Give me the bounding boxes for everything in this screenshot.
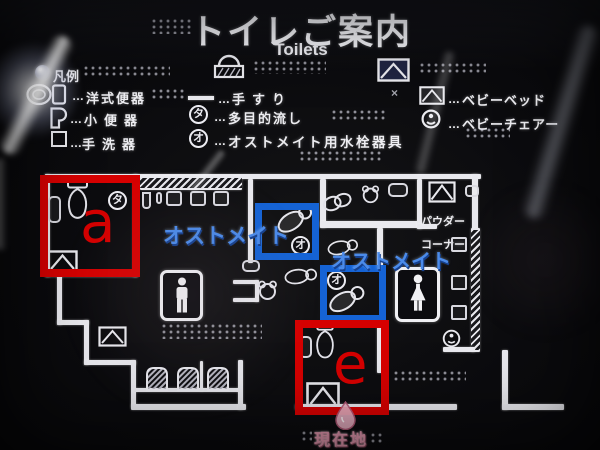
urinal-icon (242, 260, 260, 272)
multipurpose-sink-icon (360, 184, 381, 205)
sink-icon (451, 275, 467, 290)
urinal-icon (156, 192, 162, 204)
legend-item-western-toilet: 洋式便器 (86, 88, 146, 107)
sink-icon (451, 305, 467, 320)
multipurpose-sink-icon (256, 279, 279, 302)
braille-dots (254, 61, 326, 74)
wall-segment (84, 320, 89, 365)
multipurpose-sink-badge: タ (189, 105, 208, 124)
handrail-icon (188, 96, 214, 100)
ellipsis-dots: … (72, 89, 84, 103)
photo-light-streak (0, 158, 7, 250)
powder-corner-line1: パウダー (421, 216, 465, 228)
western-toilet-icon (25, 83, 67, 106)
braille-dots (84, 66, 170, 78)
legend-item-baby-bed: ベビーベッド (462, 90, 546, 109)
wall-segment (57, 275, 62, 325)
braille-dots (466, 128, 510, 140)
wall-segment (131, 360, 136, 408)
wall-segment (131, 404, 246, 410)
toilet-front-icon (210, 52, 248, 82)
wall-segment (238, 360, 243, 410)
wall-segment (502, 350, 508, 410)
hand-basin-icon (51, 131, 67, 147)
braille-dots (152, 89, 184, 99)
legend-item-urinal: 小便器 (84, 110, 144, 129)
powder-corner-icon (428, 181, 456, 203)
red-marker-a: a (80, 193, 116, 251)
braille-dots (394, 371, 466, 383)
urinal-icon (50, 107, 69, 129)
ostomate-label-2: オストメイト (331, 245, 451, 274)
ostomate-label-1: オストメイト (163, 220, 289, 250)
wall-segment (200, 361, 203, 391)
womens-room-sign (395, 267, 440, 322)
wall-segment-hatched (140, 176, 242, 190)
braille-dots (371, 433, 383, 443)
braille-dots (300, 151, 384, 163)
baby-bed-icon (419, 85, 445, 106)
sink-icon (451, 237, 467, 252)
wall-segment-hatched (471, 228, 480, 352)
ellipsis-dots: … (70, 112, 82, 126)
ellipsis-dots: … (448, 92, 460, 106)
ellipsis-dots: … (214, 110, 226, 124)
current-location-label: 現在地 (314, 426, 368, 450)
braille-dots (162, 324, 262, 339)
toilet-icon (282, 263, 320, 290)
baby-bed-icon (98, 326, 127, 347)
tactile-toilet-guide-sign: トイレご案内 Toilets 凡例 … 洋式便器 … (0, 0, 600, 450)
wall-segment (472, 174, 478, 232)
mens-room-sign (160, 270, 203, 321)
urinal-icon (174, 364, 202, 392)
baby-chair-icon (421, 109, 441, 129)
urinal-icon (190, 191, 206, 206)
ellipsis-dots: … (214, 134, 226, 148)
wall-segment (320, 221, 422, 228)
legend-bullet-dome (35, 65, 50, 80)
legend-item-ostomate-fixture: オストメイト用水栓器具 (228, 131, 404, 151)
sink-icon (388, 183, 408, 197)
legend-item-multipurpose-sink: 多目的流し (228, 108, 303, 127)
ellipsis-dots: … (70, 136, 82, 150)
legend-item-hand-basin: 手洗器 (82, 134, 142, 153)
urinal-icon (166, 191, 182, 206)
urinal-icon (204, 364, 232, 392)
cross-mark: × (391, 86, 398, 100)
legend-item-handrail: 手すり (232, 89, 292, 108)
urinal-icon (142, 192, 151, 209)
photo-reflection (480, 170, 600, 350)
ostomate-fixture-badge: オ (189, 129, 208, 148)
sink-icon (465, 185, 479, 197)
braille-dots (420, 63, 486, 75)
ellipsis-dots: … (218, 92, 230, 106)
urinal-icon (143, 364, 171, 392)
urinal-icon (213, 191, 229, 206)
baby-bed-icon (377, 58, 410, 82)
wall-segment (502, 404, 564, 410)
ellipsis-dots: … (448, 117, 460, 131)
wall-segment (84, 360, 136, 365)
braille-dots (302, 431, 312, 441)
braille-dots (332, 110, 386, 120)
baby-chair-icon (442, 329, 461, 348)
red-marker-e: e (333, 337, 367, 393)
